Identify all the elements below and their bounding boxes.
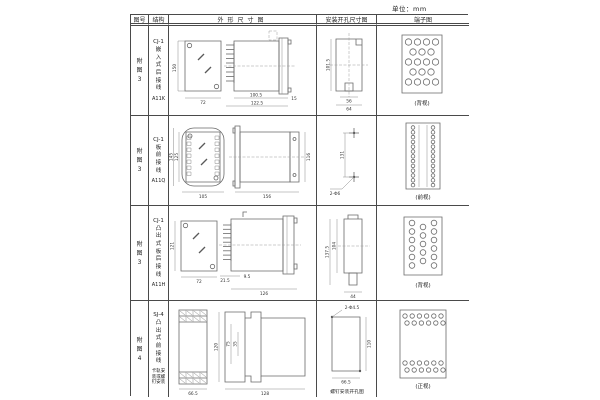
dim-front-height: 150 bbox=[172, 63, 178, 71]
header-fig-no: 图号 bbox=[131, 15, 149, 26]
front-view: 150 72 bbox=[172, 41, 221, 106]
structure-cell-2: CJ-1 板前接线 A11Q bbox=[149, 116, 169, 206]
dim-mount-h2: 64 bbox=[346, 106, 352, 112]
mount-caption: 螺钉安装开孔图 bbox=[330, 388, 364, 395]
fig-no-cell-1: 附图3 bbox=[131, 26, 149, 116]
front-view: 121 72 bbox=[170, 221, 218, 285]
structure-text: 板前接线 bbox=[155, 145, 162, 176]
outline-drawing-2: 145 125 105 156 116 bbox=[169, 117, 316, 205]
dim-mount-h1: 56 bbox=[346, 98, 352, 104]
dim-side-h: 116 bbox=[306, 152, 312, 160]
dim-front-w: 72 bbox=[196, 279, 202, 285]
dim-mount-v2: 104 bbox=[331, 241, 337, 249]
hole-spec-label: 2-Φ4.5 bbox=[344, 305, 359, 311]
terminal-strip bbox=[406, 123, 440, 189]
structure-text: 嵌入式后接线 bbox=[155, 47, 162, 93]
dim-mount-h1: 44 bbox=[350, 294, 356, 300]
dim-side-w2: 122.5 bbox=[251, 100, 264, 106]
mounting-note-text: 卡轨安装或螺钉安装 bbox=[151, 369, 166, 386]
fig-no-text: 附图3 bbox=[136, 57, 144, 84]
mount-cell-4: 2-Φ4.5 110 66.5 螺钉安装开孔图 bbox=[317, 301, 377, 397]
terminal-view-label: (前视) bbox=[415, 193, 430, 201]
dim-front-h: 121 bbox=[170, 241, 176, 249]
dim-gap: 9.5 bbox=[244, 274, 251, 280]
mount-drawing-1: 101.5 56 64 bbox=[318, 27, 376, 115]
outline-cell-3: 121 72 bbox=[169, 206, 317, 301]
terminal-cell-4: (正视) bbox=[377, 301, 469, 397]
type-code-text: A11H bbox=[152, 282, 166, 288]
terminal-cell-1: (背视) bbox=[377, 26, 469, 116]
dim-front-width: 72 bbox=[200, 100, 206, 106]
fig-no-text: 附图4 bbox=[136, 336, 144, 363]
type-code-text: A11K bbox=[152, 96, 165, 102]
dim-front-h1: 145 bbox=[169, 152, 175, 160]
dim-side-w3: 15 bbox=[291, 96, 297, 102]
structure-text: 凸出式板后接线 bbox=[155, 226, 162, 280]
terminal-view-label: (背视) bbox=[415, 281, 430, 289]
terminal-drawing-1: (背视) bbox=[378, 27, 468, 115]
document-page: 单位：mm 图号 结构 外形尺寸图 安装开孔尺寸图 端子图 附图3 CJ-1 嵌… bbox=[0, 0, 600, 400]
model-text: CJ-1 bbox=[153, 218, 164, 224]
screw-hole-view: 2-Φ4.5 110 66.5 bbox=[330, 305, 372, 386]
terminal-cell-2: (前视) bbox=[377, 116, 469, 206]
dim-mount-v1: 110 bbox=[366, 340, 372, 348]
structure-cell-4: SJ-4 凸出式前接线 卡轨安装或螺钉安装 bbox=[149, 301, 169, 397]
mount-cell-2: 131 2-Φ6 bbox=[317, 116, 377, 206]
terminal-front bbox=[400, 310, 446, 378]
dim-mount-v1: 101.5 bbox=[325, 58, 331, 71]
outline-cell-1: 150 72 bbox=[169, 26, 317, 116]
terminal-socket bbox=[404, 217, 442, 275]
header-structure: 结构 bbox=[149, 15, 169, 26]
outline-cell-4: 66.5 120 75 35 128 bbox=[169, 301, 317, 397]
model-text: CJ-1 bbox=[153, 137, 164, 143]
dim-side-l: 128 bbox=[261, 391, 269, 396]
spec-table: 图号 结构 外形尺寸图 安装开孔尺寸图 端子图 附图3 CJ-1 嵌入式后接线 … bbox=[130, 14, 468, 396]
mount-drawing-2: 131 2-Φ6 bbox=[318, 117, 376, 205]
dim-mount-h1: 66.5 bbox=[341, 380, 351, 386]
front-view: 145 125 105 bbox=[169, 128, 224, 200]
terminal-drawing-3: (背视) bbox=[378, 207, 468, 300]
unit-label: 单位：mm bbox=[392, 3, 427, 13]
hole-positions: 131 2-Φ6 bbox=[329, 128, 358, 197]
header-mount: 安装开孔尺寸图 bbox=[317, 15, 377, 26]
outline-drawing-3: 121 72 bbox=[169, 207, 316, 300]
side-view: 100.5 15 122.5 bbox=[224, 31, 297, 107]
type-code-text: A11Q bbox=[152, 178, 166, 184]
structure-cell-3: CJ-1 凸出式板后接线 A11H bbox=[149, 206, 169, 301]
side-view: 156 116 bbox=[229, 126, 312, 200]
dim-front-w: 105 bbox=[199, 194, 207, 200]
terminal-cell-3: (背视) bbox=[377, 206, 469, 301]
outline-drawing-1: 150 72 bbox=[169, 27, 316, 115]
terminal-drawing-2: (前视) bbox=[378, 117, 468, 205]
fig-no-text: 附图3 bbox=[136, 240, 144, 267]
side-view: 21.5 9.5 126 bbox=[219, 212, 301, 297]
mount-drawing-4: 2-Φ4.5 110 66.5 螺钉安装开孔图 bbox=[318, 302, 376, 396]
dim-pin-l: 21.5 bbox=[220, 278, 230, 284]
fig-no-cell-4: 附图4 bbox=[131, 301, 149, 397]
front-view: 66.5 bbox=[179, 310, 207, 396]
terminal-view-label: (背视) bbox=[414, 99, 429, 107]
dim-mount-v1: 137.5 bbox=[324, 245, 330, 258]
mount-cell-1: 101.5 56 64 bbox=[317, 26, 377, 116]
terminal-socket bbox=[402, 35, 442, 93]
dim-front-w: 66.5 bbox=[188, 391, 198, 396]
model-text: CJ-1 bbox=[153, 39, 164, 45]
outline-drawing-4: 66.5 120 75 35 128 bbox=[169, 302, 316, 396]
header-terminal: 端子图 bbox=[377, 15, 469, 26]
dim-mount-v1: 131 bbox=[339, 150, 345, 158]
dim-side-l: 126 bbox=[260, 291, 268, 297]
structure-text: 凸出式前接线 bbox=[155, 320, 162, 366]
mount-drawing-3: 137.5 104 44 bbox=[318, 207, 376, 300]
terminal-view-label: (正视) bbox=[415, 382, 430, 390]
fig-no-cell-3: 附图3 bbox=[131, 206, 149, 301]
outline-cell-2: 145 125 105 156 116 bbox=[169, 116, 317, 206]
header-outline: 外形尺寸图 bbox=[169, 15, 317, 26]
dim-d1: 75 bbox=[226, 341, 232, 347]
model-text: SJ-4 bbox=[153, 312, 163, 318]
dim-front-h2: 125 bbox=[174, 152, 180, 160]
mount-cell-3: 137.5 104 44 bbox=[317, 206, 377, 301]
dim-side-l: 156 bbox=[263, 194, 271, 200]
cutout-view: 137.5 104 44 bbox=[324, 215, 370, 300]
side-view: 120 75 35 128 bbox=[214, 312, 306, 396]
hole-spec-label: 2-Φ6 bbox=[329, 191, 340, 197]
cutout-view: 101.5 56 64 bbox=[325, 33, 368, 113]
fig-no-cell-2: 附图3 bbox=[131, 116, 149, 206]
fig-no-text: 附图3 bbox=[136, 147, 144, 174]
dim-side-w1: 100.5 bbox=[250, 92, 263, 98]
dim-side-h: 120 bbox=[214, 343, 220, 351]
structure-cell-1: CJ-1 嵌入式后接线 A11K bbox=[149, 26, 169, 116]
terminal-drawing-4: (正视) bbox=[378, 302, 468, 396]
dim-d2: 35 bbox=[233, 341, 239, 347]
